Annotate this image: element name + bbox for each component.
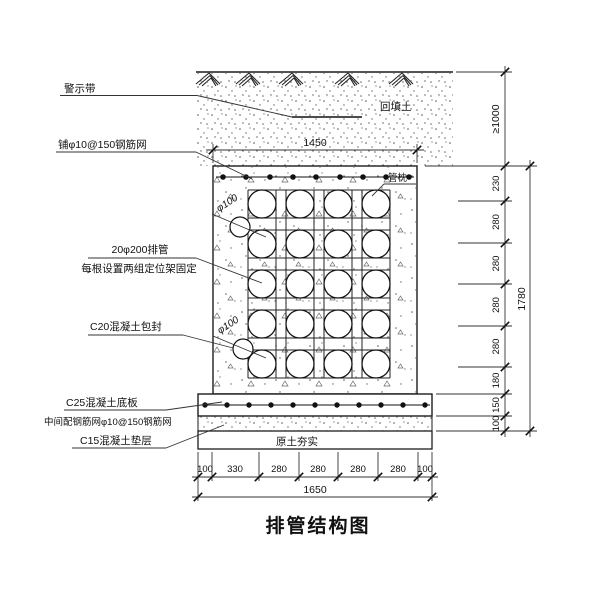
pipe-circle [362, 310, 390, 338]
compacted-soil-band: 原土夯实 [198, 431, 432, 449]
pipe-circle [286, 310, 314, 338]
pipe-circle [248, 230, 276, 258]
cushion-label: C15混凝土垫层 [80, 434, 152, 447]
pipe-circle [324, 350, 352, 378]
backfill-label: 回填土 [380, 100, 412, 113]
dim-right-0: 230 [491, 176, 502, 192]
dim-bottom-3: 280 [310, 464, 326, 475]
cushion-layer [198, 416, 432, 431]
pipes-label-line1: 20φ200排管 [111, 243, 168, 256]
pipe-pillow-label: 管枕 [388, 172, 408, 184]
dim-bottom-1: 330 [227, 464, 243, 475]
pipe-circle [324, 230, 352, 258]
pipes-label-line2: 每根设置两组定位架固定 [81, 262, 197, 275]
dim-right-1: 280 [491, 214, 502, 230]
dim-right-total: 1780 [516, 287, 528, 311]
pipe-circle [286, 190, 314, 218]
drawing-title: 排管结构图 [265, 514, 370, 537]
pipe-circle [324, 190, 352, 218]
pipe-circle [248, 270, 276, 298]
pipe-circle [362, 230, 390, 258]
pipe-circle [286, 230, 314, 258]
duct-bank-section-svg: 回填土 φ100 φ100 [0, 0, 600, 600]
pipe-circle [248, 190, 276, 218]
dim-top-width-value: 1450 [303, 137, 327, 149]
dim-right-7: 100 [491, 416, 502, 432]
dim-min-cover: ≥1000 [490, 104, 502, 133]
drain-pipe-circle-top [230, 217, 250, 237]
dim-bottom-5: 280 [390, 464, 406, 475]
pipe-circle [362, 190, 390, 218]
dim-bottom-2: 280 [271, 464, 287, 475]
pipe-circle [286, 350, 314, 378]
dim-bottom-total: 1650 [303, 484, 327, 496]
dim-right-2: 280 [491, 256, 502, 272]
dim-right-5: 180 [491, 373, 502, 389]
encasement-label: C20混凝土包封 [90, 320, 162, 333]
top-mesh-dots [216, 174, 414, 180]
dim-right-3: 280 [491, 297, 502, 313]
base-slab-label: C25混凝土底板 [66, 396, 138, 409]
pipe-circle [286, 270, 314, 298]
engineering-drawing: 回填土 φ100 φ100 [0, 0, 600, 600]
pipe-circle [324, 310, 352, 338]
dim-right-4: 280 [491, 339, 502, 355]
drain-pipe-circle-bottom [233, 339, 253, 359]
dim-bottom-4: 280 [350, 464, 366, 475]
dim-bottom-0: 100 [197, 464, 213, 475]
pipe-circle [362, 270, 390, 298]
slab-mesh-label: 中间配钢筋网φ10@150钢筋网 [44, 416, 172, 428]
base-slab [198, 394, 432, 416]
top-mesh-label: 铺φ10@150钢筋网 [58, 138, 147, 151]
dim-bottom-6: 100 [417, 464, 433, 475]
dim-right-6: 150 [491, 397, 502, 413]
compacted-soil-label: 原土夯实 [276, 435, 318, 448]
pipe-circle [362, 350, 390, 378]
cushion-outline [198, 416, 432, 431]
warning-tape-label: 警示带 [64, 82, 96, 95]
pipe-circle [324, 270, 352, 298]
pipe-circle [248, 310, 276, 338]
callout-slab-mesh: 中间配钢筋网φ10@150钢筋网 [44, 416, 172, 428]
callout-encasement: C20混凝土包封 [88, 320, 233, 348]
dimension-bottom: 100 330 280 280 280 280 100 1650 [192, 452, 438, 501]
